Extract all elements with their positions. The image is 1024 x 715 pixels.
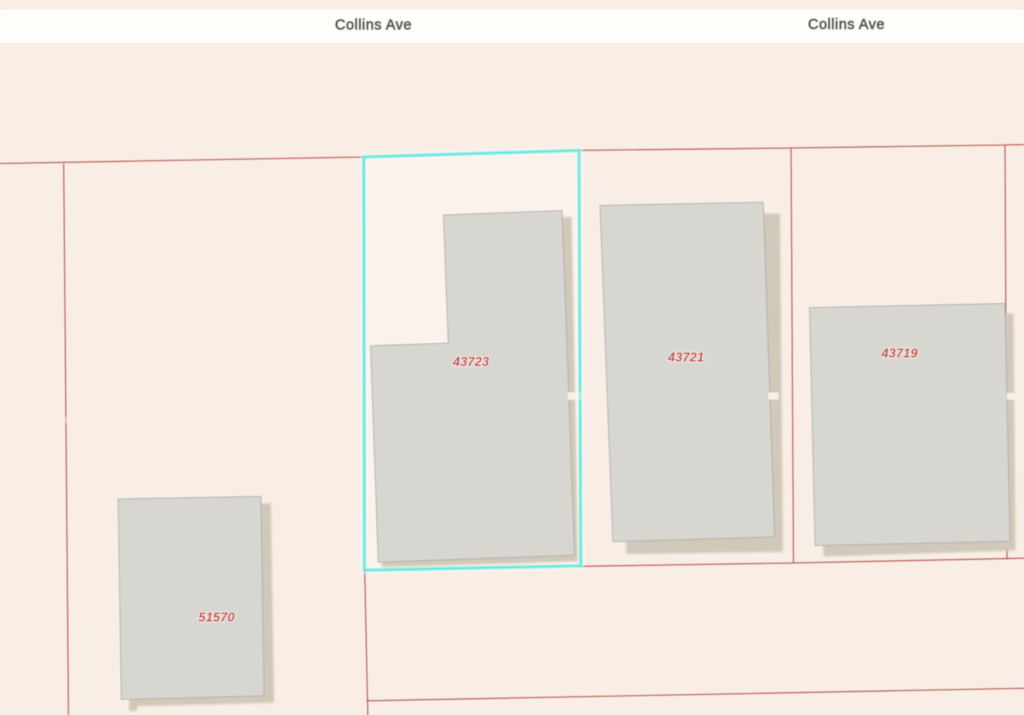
svg-text:51570: 51570 (198, 609, 235, 624)
svg-text:43721: 43721 (667, 350, 704, 365)
svg-text:43719: 43719 (880, 346, 918, 361)
svg-text:Collins Ave: Collins Ave (335, 18, 412, 34)
svg-text:Collins Ave: Collins Ave (808, 17, 885, 33)
svg-text:43723: 43723 (452, 354, 490, 369)
